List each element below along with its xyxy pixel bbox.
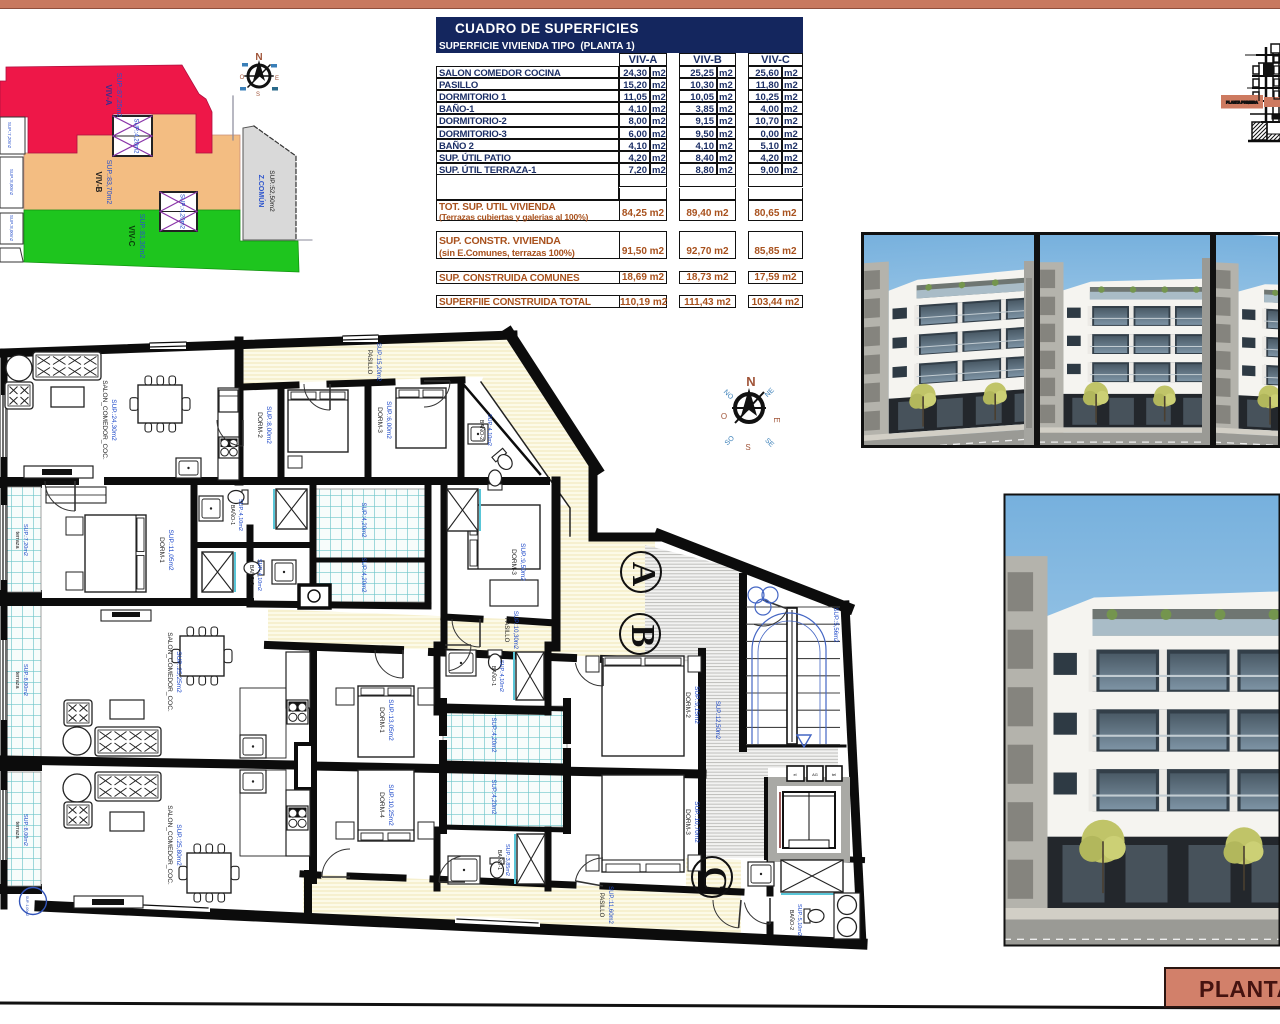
svg-text:SUP.:7,20m2: SUP.:7,20m2 xyxy=(7,122,12,149)
svg-text:SALON_COMEDOR_COC.: SALON_COMEDOR_COC. xyxy=(101,380,108,460)
svg-text:SUP.:4,20m2: SUP.:4,20m2 xyxy=(490,718,496,754)
svg-text:SUP.:8,00m2: SUP.:8,00m2 xyxy=(9,215,14,242)
svg-text:terraza: terraza xyxy=(14,671,20,689)
svg-text:PLANTA PRIMERA: PLANTA PRIMERA xyxy=(1226,101,1258,105)
svg-text:SUP.:4,10m2: SUP.:4,10m2 xyxy=(498,660,504,692)
svg-text:SUP.:11,05m2: SUP.:11,05m2 xyxy=(167,530,174,571)
svg-text:SE: SE xyxy=(763,437,775,449)
svg-text:DORM-3: DORM-3 xyxy=(510,549,517,575)
svg-text:SUP.:4,20m2: SUP.:4,20m2 xyxy=(490,780,496,816)
svg-text:BAÑO-2: BAÑO-2 xyxy=(788,910,795,930)
svg-text:E: E xyxy=(772,417,781,422)
svg-text:NE: NE xyxy=(764,387,776,399)
svg-text:SUP.:5,10m2: SUP.:5,10m2 xyxy=(796,904,802,936)
svg-text:SUP.:8,00m2: SUP.:8,00m2 xyxy=(22,664,28,696)
svg-text:N: N xyxy=(255,52,262,63)
svg-text:SUP.:6,00m2: SUP.:6,00m2 xyxy=(385,401,392,439)
svg-text:SUP.:9,50m2: SUP.:9,50m2 xyxy=(519,543,526,581)
svg-text:SUP.:4,20m2: SUP.:4,20m2 xyxy=(360,558,366,594)
svg-text:BAÑO-1: BAÑO-1 xyxy=(496,850,503,870)
svg-text:AG: AG xyxy=(812,772,818,777)
svg-text:BAÑO-2: BAÑO-2 xyxy=(478,420,485,440)
svg-text:terraza: terraza xyxy=(14,531,20,549)
svg-text:SUP.:11,60m2: SUP.:11,60m2 xyxy=(607,886,613,924)
svg-text:VIV-C: VIV-C xyxy=(127,226,136,247)
svg-text:SUP.:7,20m2: SUP.:7,20m2 xyxy=(22,524,28,556)
svg-text:SUP.:13,05m2: SUP.:13,05m2 xyxy=(387,699,394,741)
svg-text:PASILLO: PASILLO xyxy=(503,618,509,643)
svg-text:SUP.:8,00m2: SUP.:8,00m2 xyxy=(9,169,14,196)
svg-text:SUP.:4,20m2: SUP.:4,20m2 xyxy=(360,503,366,539)
svg-text:SUP.:24,30m2: SUP.:24,30m2 xyxy=(110,399,117,441)
svg-text:C: C xyxy=(696,867,733,892)
svg-text:S: S xyxy=(256,92,260,98)
svg-text:SALON_COMEDOR_COC.: SALON_COMEDOR_COC. xyxy=(166,632,173,712)
svg-text:el: el xyxy=(793,772,796,777)
svg-text:BAÑO-1: BAÑO-1 xyxy=(229,505,236,525)
svg-text:SUP.:4,10m2: SUP.:4,10m2 xyxy=(486,414,492,446)
svg-text:Z.COMÚN: Z.COMÚN xyxy=(257,175,266,208)
svg-text:terraza: terraza xyxy=(14,821,20,839)
svg-text:SUP.:9,15m2: SUP.:9,15m2 xyxy=(693,686,700,724)
svg-text:SUP.:83,70m2: SUP.:83,70m2 xyxy=(105,160,112,205)
svg-text:DORM-1: DORM-1 xyxy=(378,707,385,733)
svg-text:B: B xyxy=(624,625,661,648)
svg-text:O: O xyxy=(721,412,727,421)
svg-text:VIV-A: VIV-A xyxy=(104,85,113,106)
svg-text:SUP.:52,50m2: SUP.:52,50m2 xyxy=(268,170,275,212)
svg-text:PASILLO: PASILLO xyxy=(366,350,372,375)
svg-text:SUP.:25,80m2: SUP.:25,80m2 xyxy=(175,824,182,866)
svg-text:SUP.:10,30m2: SUP.:10,30m2 xyxy=(512,611,518,650)
svg-text:SUP.:87,25m2: SUP.:87,25m2 xyxy=(115,73,122,118)
svg-text:NO: NO xyxy=(722,389,735,402)
svg-text:DORM-2: DORM-2 xyxy=(256,412,263,438)
svg-text:SUP.:8,00m2: SUP.:8,00m2 xyxy=(22,814,28,846)
svg-text:DORM-4: DORM-4 xyxy=(378,792,385,818)
svg-text:SUP.:81,36m2: SUP.:81,36m2 xyxy=(138,214,145,259)
svg-text:SUP.:4,10m2: SUP.:4,10m2 xyxy=(256,559,262,591)
svg-text:SUP.:10,25m2: SUP.:10,25m2 xyxy=(387,784,394,826)
svg-text:SUP.:5,56m2: SUP.:5,56m2 xyxy=(832,608,838,644)
svg-text:DORM-1: DORM-1 xyxy=(158,537,165,563)
svg-text:VIV-B: VIV-B xyxy=(94,172,103,193)
svg-text:SUP.:4,20m2: SUP.:4,20m2 xyxy=(133,119,139,155)
svg-text:DORM-3: DORM-3 xyxy=(684,809,691,835)
svg-text:SUP.:3,85m2: SUP.:3,85m2 xyxy=(504,844,510,876)
svg-text:SUP.:12,50m2: SUP.:12,50m2 xyxy=(714,701,720,740)
svg-text:SUP.:4,10m2: SUP.:4,10m2 xyxy=(237,499,243,531)
svg-text:PASILLO: PASILLO xyxy=(598,893,604,918)
svg-text:BAÑO-2: BAÑO-2 xyxy=(248,565,255,585)
svg-text:SUP.:25,25m2: SUP.:25,25m2 xyxy=(175,651,182,693)
svg-text:SUP.:8,00m2: SUP.:8,00m2 xyxy=(265,406,272,444)
svg-text:SUP.:4,20m2: SUP.:4,20m2 xyxy=(179,194,185,230)
svg-text:E: E xyxy=(275,76,279,82)
svg-text:tel: tel xyxy=(832,772,836,777)
svg-text:SALON_COMEDOR_COC.: SALON_COMEDOR_COC. xyxy=(166,805,173,885)
svg-text:SUP.:15,20m2: SUP.:15,20m2 xyxy=(375,343,381,382)
svg-text:DORM-3: DORM-3 xyxy=(376,407,383,433)
svg-text:SO: SO xyxy=(724,435,736,447)
svg-text:SUP.:1,00m2: SUP.:1,00m2 xyxy=(25,896,29,916)
svg-text:A: A xyxy=(625,562,662,587)
svg-text:S: S xyxy=(745,443,750,452)
svg-text:SUP.:10,70m2: SUP.:10,70m2 xyxy=(693,801,700,843)
svg-text:O: O xyxy=(240,75,245,81)
svg-text:N: N xyxy=(746,374,755,389)
svg-text:DORM-2: DORM-2 xyxy=(684,692,691,718)
svg-text:BAÑO-1: BAÑO-1 xyxy=(490,666,497,686)
